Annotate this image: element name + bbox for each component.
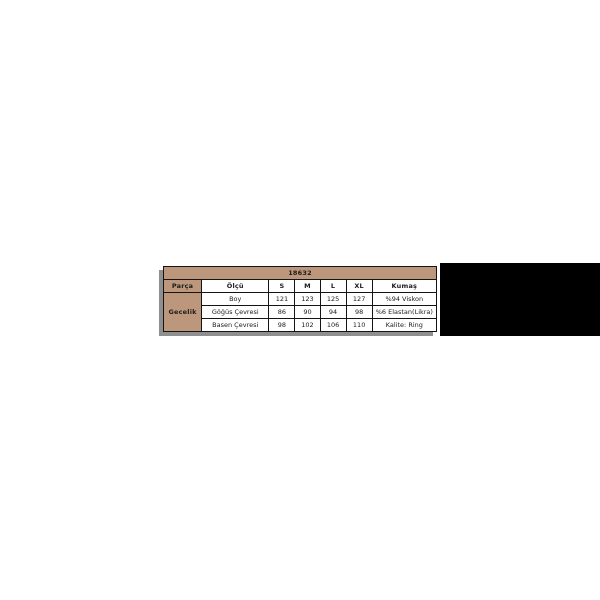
row-group-gecelik: Gecelik	[164, 293, 202, 332]
value-s: 98	[269, 319, 295, 332]
value-s: 86	[269, 306, 295, 319]
col-header-s: S	[269, 280, 295, 293]
value-s: 121	[269, 293, 295, 306]
col-header-olcu: Ölçü	[202, 280, 269, 293]
value-xl: 127	[346, 293, 372, 306]
table-row: Gecelik Boy 121 123 125 127 %94 Viskon	[164, 293, 437, 306]
measure-label: Boy	[202, 293, 269, 306]
value-l: 106	[320, 319, 346, 332]
measure-label: Basen Çevresi	[202, 319, 269, 332]
col-header-xl: XL	[346, 280, 372, 293]
table-row: Basen Çevresi 98 102 106 110 Kalite: Rin…	[164, 319, 437, 332]
value-m: 90	[295, 306, 320, 319]
fabric-info: Kalite: Ring	[372, 319, 436, 332]
col-header-kumas: Kumaş	[372, 280, 436, 293]
product-image-canvas: 18632 Parça Ölçü S M L XL Kumaş Gecelik …	[0, 0, 600, 600]
product-code-row: 18632	[164, 267, 437, 280]
col-header-m: M	[295, 280, 320, 293]
fabric-info: %94 Viskon	[372, 293, 436, 306]
value-xl: 98	[346, 306, 372, 319]
value-m: 123	[295, 293, 320, 306]
product-code: 18632	[164, 267, 437, 280]
measure-label: Göğüs Çevresi	[202, 306, 269, 319]
col-header-parca: Parça	[164, 280, 202, 293]
censored-black-panel	[440, 263, 600, 336]
value-l: 125	[320, 293, 346, 306]
fabric-info: %6 Elastan(Likra)	[372, 306, 436, 319]
col-header-l: L	[320, 280, 346, 293]
value-xl: 110	[346, 319, 372, 332]
size-chart-table: 18632 Parça Ölçü S M L XL Kumaş Gecelik …	[163, 266, 437, 332]
table-row: Göğüs Çevresi 86 90 94 98 %6 Elastan(Lik…	[164, 306, 437, 319]
value-m: 102	[295, 319, 320, 332]
column-header-row: Parça Ölçü S M L XL Kumaş	[164, 280, 437, 293]
value-l: 94	[320, 306, 346, 319]
